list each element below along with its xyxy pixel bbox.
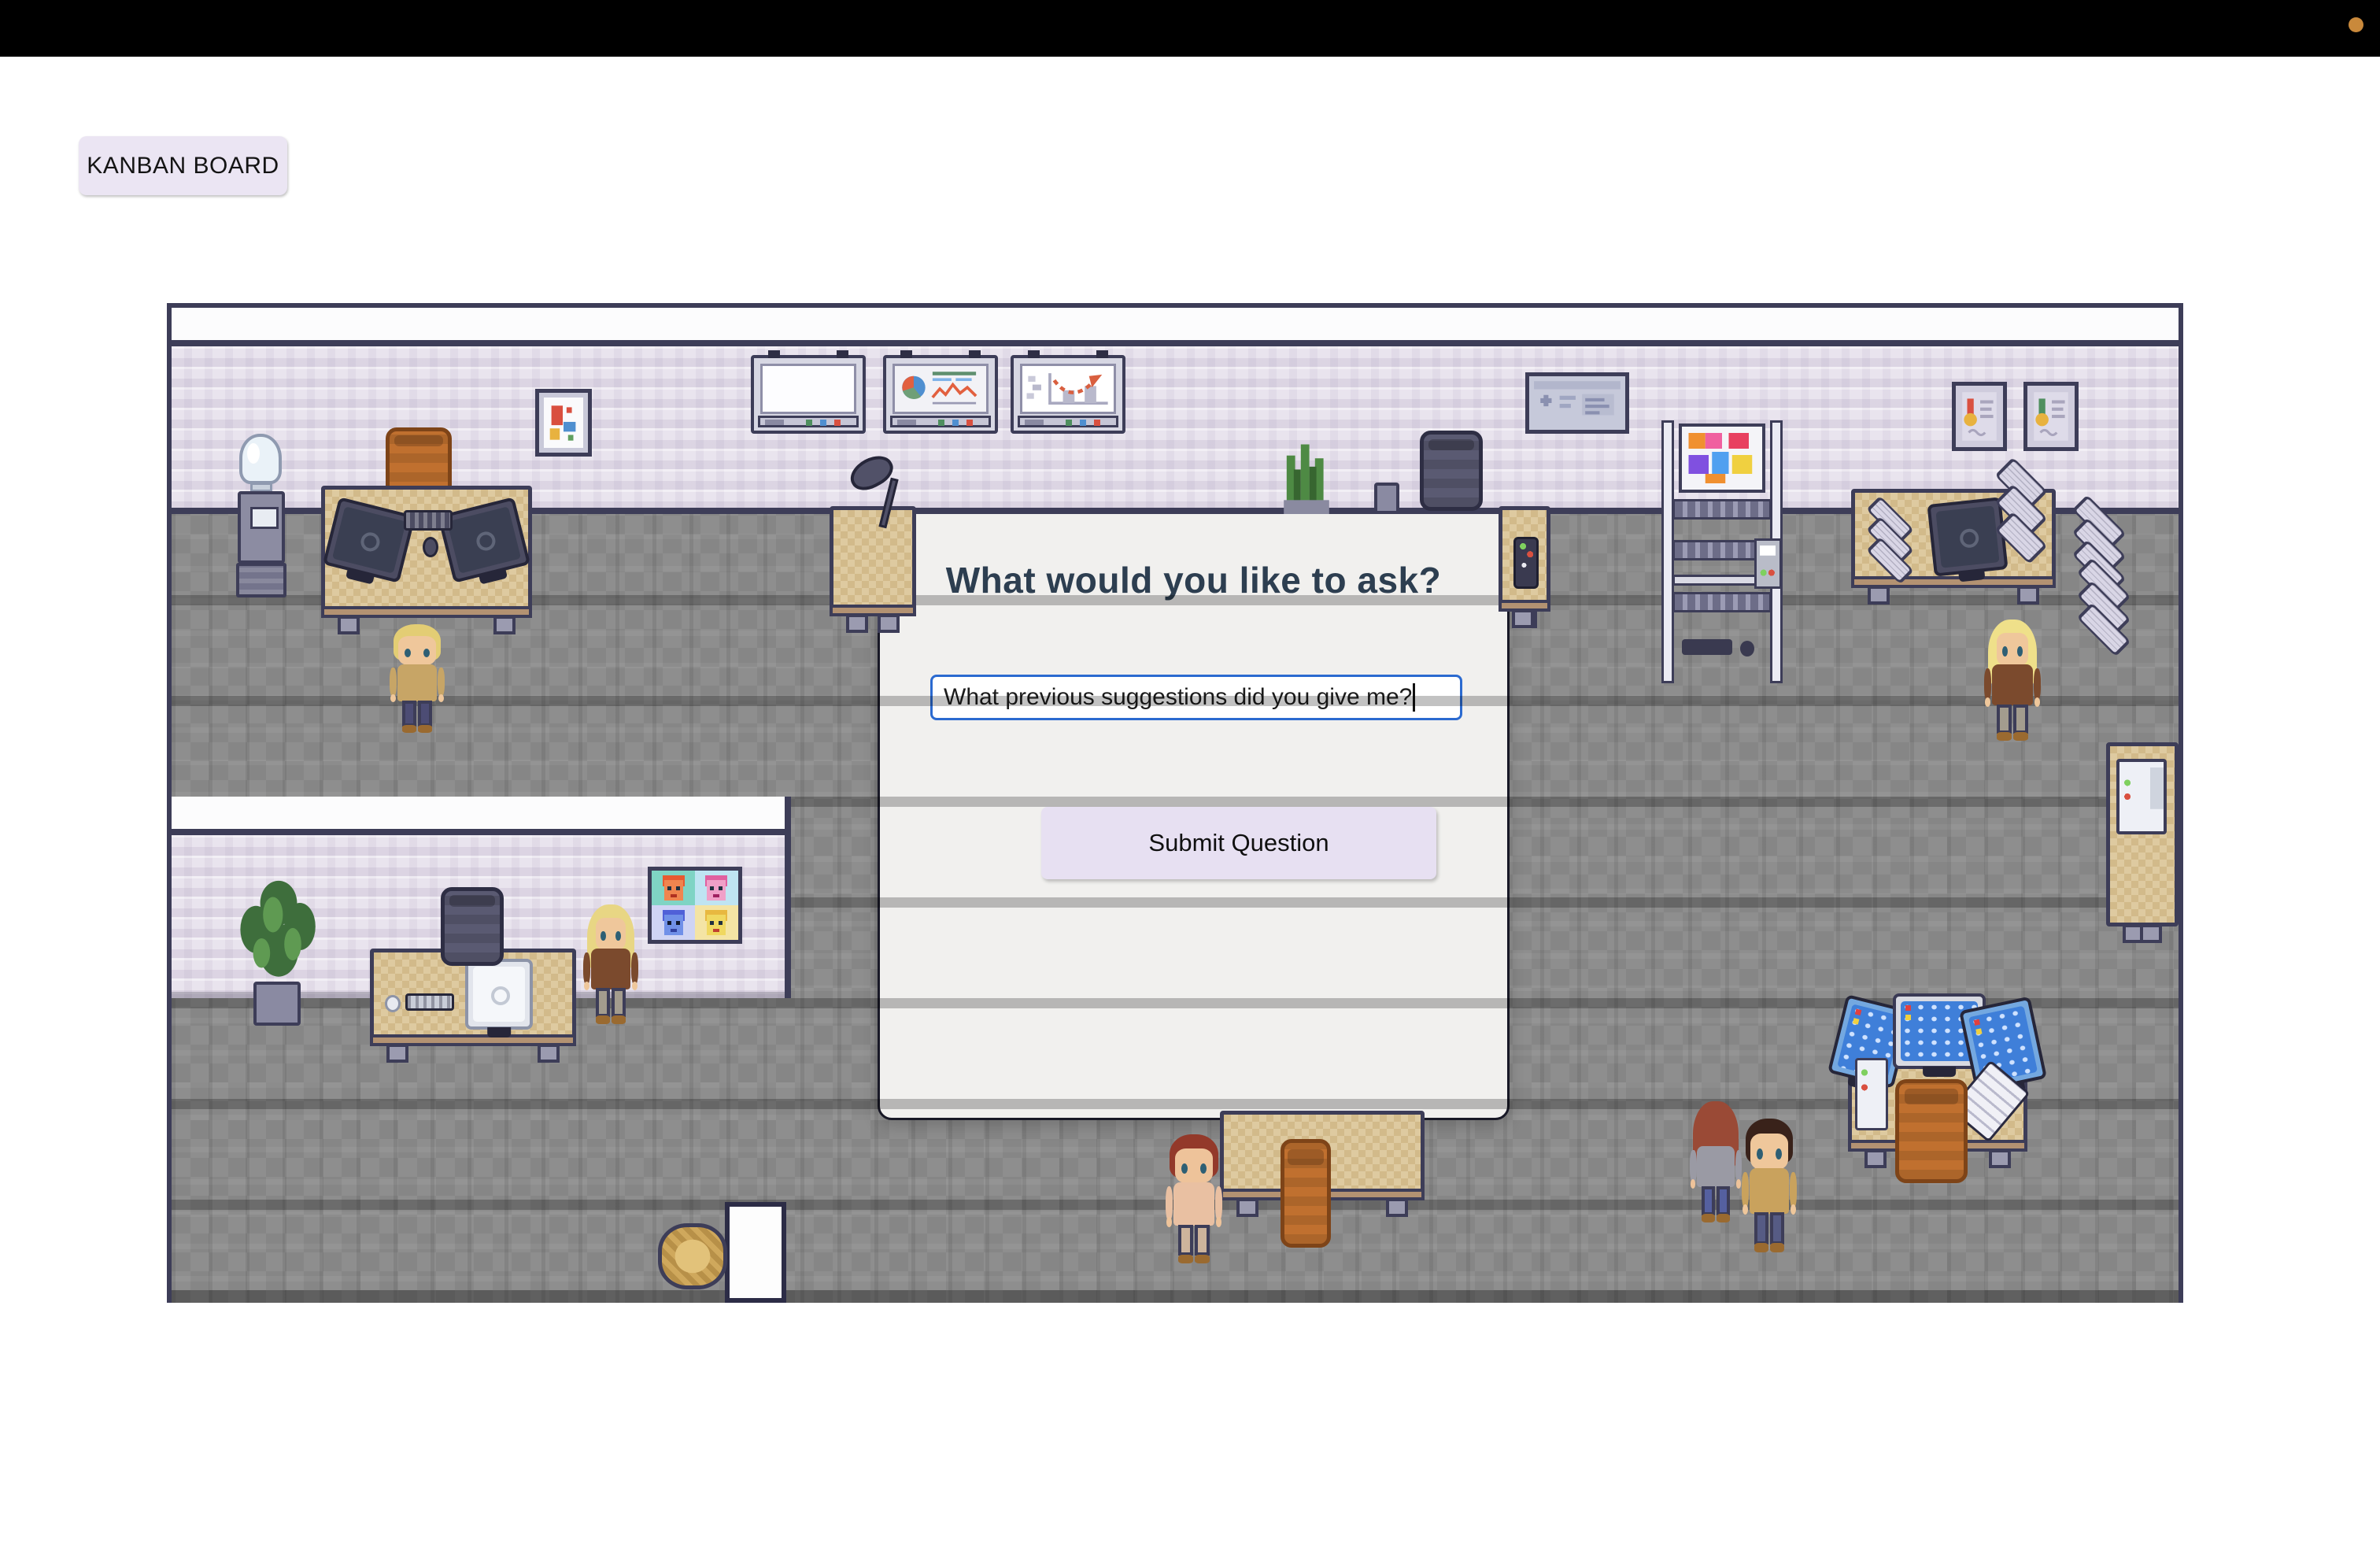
part-part bbox=[1085, 386, 1096, 403]
clip-part bbox=[969, 350, 981, 358]
part-part bbox=[1585, 398, 1604, 401]
certificate-frame bbox=[2023, 382, 2079, 451]
part-part bbox=[1560, 404, 1571, 408]
part-part bbox=[1534, 381, 1621, 389]
leg-part bbox=[1989, 1149, 2011, 1168]
plant-pot bbox=[253, 982, 301, 1026]
leg-part bbox=[1717, 1186, 1730, 1215]
shoe-part bbox=[1702, 1214, 1715, 1222]
eye-part bbox=[1200, 1163, 1207, 1174]
character-brown-haired-man bbox=[1741, 1119, 1798, 1252]
leg-part bbox=[1864, 1149, 1887, 1168]
shoe-part bbox=[1997, 732, 2012, 741]
part-part bbox=[2027, 386, 2075, 447]
arm-part bbox=[583, 952, 590, 985]
part-part bbox=[705, 910, 727, 935]
bitem-part bbox=[1740, 641, 1754, 656]
part-part bbox=[1682, 427, 1762, 490]
scr-part bbox=[332, 506, 406, 573]
part-part bbox=[713, 929, 719, 932]
leg-part bbox=[1386, 1198, 1408, 1217]
eye-part bbox=[2017, 646, 2023, 656]
leg-part bbox=[1754, 1212, 1768, 1245]
top-bar bbox=[0, 0, 2380, 57]
part-part bbox=[676, 886, 680, 890]
desktop-tower bbox=[1855, 1058, 1888, 1130]
tall-plant bbox=[236, 879, 321, 997]
part-part bbox=[667, 886, 671, 890]
scr-part bbox=[473, 967, 525, 1022]
leg-part bbox=[402, 701, 416, 727]
leg-part bbox=[1997, 705, 2012, 734]
part-part bbox=[895, 366, 986, 412]
face-part bbox=[1175, 1148, 1214, 1183]
g-part bbox=[1066, 420, 1072, 426]
shoe-part bbox=[402, 725, 416, 733]
part-part bbox=[719, 921, 722, 925]
desk bbox=[830, 506, 916, 616]
wc-body-part bbox=[238, 491, 285, 564]
part-part bbox=[1964, 413, 1977, 426]
leg-part bbox=[878, 614, 900, 633]
office-chair bbox=[1895, 1079, 1968, 1183]
remote-control bbox=[1513, 537, 1539, 589]
part-part bbox=[2052, 408, 2063, 411]
floor-divider bbox=[172, 1290, 2179, 1303]
tray-part bbox=[1018, 416, 1118, 427]
part-part bbox=[1310, 467, 1317, 503]
shoe-part bbox=[1178, 1255, 1193, 1263]
shoe-part bbox=[1717, 1214, 1730, 1222]
part-part bbox=[1689, 455, 1709, 474]
shoe-part bbox=[418, 725, 432, 733]
ceiling-band bbox=[172, 308, 2179, 346]
leg-part bbox=[418, 701, 432, 727]
monitor bbox=[323, 497, 416, 583]
trim-part bbox=[830, 605, 916, 616]
clip-part bbox=[900, 350, 912, 358]
character-red-haired-man bbox=[1165, 1134, 1223, 1263]
torso-part bbox=[1750, 1168, 1789, 1214]
surface-part bbox=[760, 364, 856, 414]
surface-part bbox=[1020, 364, 1116, 414]
arm-part bbox=[1166, 1186, 1173, 1221]
desk-lamp bbox=[849, 458, 915, 540]
shoe-part bbox=[596, 1015, 610, 1024]
part-part bbox=[955, 378, 971, 381]
keyboard bbox=[404, 510, 453, 531]
pop-art-poster bbox=[648, 867, 742, 944]
paper-stack bbox=[1861, 504, 1921, 583]
part-part bbox=[1301, 445, 1310, 503]
desk bbox=[1851, 489, 2056, 588]
part-part bbox=[933, 372, 976, 375]
part-part bbox=[652, 871, 738, 940]
part-part bbox=[710, 886, 714, 890]
part-part bbox=[1560, 396, 1576, 400]
part-part bbox=[1033, 385, 1041, 390]
bl-part bbox=[820, 420, 826, 426]
inner-part bbox=[544, 398, 583, 448]
clip-part bbox=[768, 350, 780, 358]
part-part bbox=[671, 894, 677, 897]
slat-part bbox=[1672, 592, 1772, 612]
leg-part bbox=[493, 616, 516, 634]
pd-papers-part bbox=[2115, 844, 2173, 919]
wall-art-frame bbox=[535, 389, 592, 457]
part-part bbox=[664, 880, 683, 901]
part-part bbox=[671, 929, 677, 932]
arm-part bbox=[438, 668, 445, 697]
arm-part bbox=[390, 668, 397, 697]
kanban-board-button[interactable]: KANBAN BOARD bbox=[79, 136, 287, 195]
part-part bbox=[1706, 433, 1722, 449]
eye-part bbox=[615, 931, 621, 941]
part-part bbox=[1712, 452, 1728, 474]
leg-part bbox=[338, 616, 360, 634]
office-chair bbox=[1420, 431, 1483, 511]
face-part bbox=[596, 918, 626, 950]
arm-part bbox=[2034, 668, 2042, 701]
slat-part bbox=[1672, 499, 1772, 520]
shelf-unit bbox=[1661, 420, 1783, 683]
part-part bbox=[567, 407, 572, 412]
part-part bbox=[707, 880, 726, 901]
arm-part bbox=[631, 952, 638, 985]
part-part bbox=[719, 886, 722, 890]
leg-part bbox=[2013, 705, 2028, 734]
part-part bbox=[676, 921, 680, 925]
part-part bbox=[1732, 455, 1753, 474]
part-part bbox=[1980, 415, 1994, 418]
part-part bbox=[2052, 400, 2065, 403]
torso-part bbox=[591, 949, 630, 989]
monitor bbox=[465, 959, 533, 1030]
keyboard bbox=[405, 993, 454, 1011]
part-part bbox=[1956, 386, 2003, 447]
certificate-frame bbox=[1952, 382, 2007, 451]
part-part bbox=[263, 897, 283, 933]
whiteboard-graph bbox=[1011, 355, 1125, 434]
part-part bbox=[1980, 400, 1994, 403]
whiteboard-charts bbox=[883, 355, 998, 434]
mouse bbox=[385, 995, 401, 1012]
character-long-haired-back bbox=[1689, 1101, 1743, 1222]
bl-part bbox=[1080, 420, 1086, 426]
r2c-part bbox=[172, 797, 785, 835]
part-part bbox=[1706, 474, 1726, 483]
leg-part bbox=[612, 988, 626, 1016]
g-part bbox=[806, 420, 812, 426]
page: { "topbar": { "background": "#000000", "… bbox=[0, 0, 2380, 1546]
eye-part bbox=[405, 649, 411, 657]
eye-part bbox=[1181, 1163, 1188, 1174]
paper-stack bbox=[1992, 463, 2053, 567]
tray-part bbox=[890, 416, 991, 427]
arm-part bbox=[1690, 1150, 1697, 1183]
part-part bbox=[2035, 413, 2049, 426]
part-part bbox=[1027, 393, 1034, 398]
part-part bbox=[552, 405, 563, 425]
shoe-part bbox=[1195, 1255, 1210, 1263]
part-part bbox=[933, 378, 952, 381]
part-part bbox=[664, 915, 683, 935]
torso-part bbox=[1992, 664, 2033, 705]
leg-part bbox=[1868, 586, 1890, 605]
part-part bbox=[1278, 442, 1335, 514]
desk bbox=[1499, 506, 1550, 612]
character-blond-man bbox=[389, 624, 445, 733]
pd-device-part bbox=[2116, 759, 2167, 834]
stand-part bbox=[487, 1027, 511, 1037]
part-part bbox=[1022, 366, 1114, 412]
part-part bbox=[236, 879, 321, 997]
er-part bbox=[765, 420, 784, 425]
part-part bbox=[1980, 408, 1991, 411]
stand-part bbox=[346, 568, 375, 585]
office-chair bbox=[1281, 1139, 1331, 1248]
monitor bbox=[438, 497, 530, 583]
part-part bbox=[1529, 376, 1625, 430]
arm-part bbox=[1790, 1172, 1797, 1208]
torso-part bbox=[1173, 1182, 1214, 1226]
art-part bbox=[1679, 423, 1765, 493]
part-part bbox=[1284, 500, 1329, 514]
part-part bbox=[1689, 433, 1706, 449]
r-part bbox=[834, 420, 841, 426]
r-part bbox=[1094, 420, 1100, 426]
part-part bbox=[544, 398, 583, 448]
wicker-chair bbox=[658, 1223, 727, 1289]
leg-part bbox=[1178, 1225, 1193, 1256]
office-chair bbox=[441, 887, 504, 966]
part-part bbox=[1585, 405, 1609, 408]
leg-part bbox=[538, 1044, 560, 1063]
torso-part bbox=[397, 664, 437, 701]
trash-bin bbox=[1374, 483, 1399, 514]
shoe-part bbox=[612, 1015, 626, 1024]
game-map bbox=[167, 303, 2183, 1303]
stand-part bbox=[1923, 1067, 1956, 1077]
eye-part bbox=[423, 649, 430, 657]
printer-desk bbox=[2106, 742, 2179, 926]
character-blonde-woman bbox=[1983, 620, 2042, 741]
part-part bbox=[707, 915, 726, 935]
face-part bbox=[398, 636, 436, 665]
shoe-part bbox=[1754, 1243, 1768, 1252]
bl-part bbox=[952, 420, 959, 426]
whiteboard bbox=[751, 355, 866, 434]
part-part bbox=[253, 938, 271, 968]
wc-slot-part bbox=[250, 507, 279, 529]
bitem-part bbox=[1682, 639, 1732, 655]
part-part bbox=[564, 422, 575, 431]
part-part bbox=[550, 428, 560, 439]
torso-part bbox=[1697, 1146, 1735, 1187]
paper-stack bbox=[2071, 568, 2140, 654]
eye-part bbox=[601, 931, 606, 941]
er-part bbox=[897, 420, 916, 425]
tray-part bbox=[758, 416, 859, 427]
part-part bbox=[705, 875, 727, 901]
arm-part bbox=[879, 478, 899, 529]
part-part bbox=[713, 894, 719, 897]
wc-base-part bbox=[236, 563, 286, 597]
face-part bbox=[1997, 633, 2028, 666]
floor-divider bbox=[172, 696, 2179, 706]
eye-part bbox=[2002, 646, 2008, 656]
part-part bbox=[710, 921, 714, 925]
wc-bottle-part bbox=[239, 434, 282, 484]
door bbox=[725, 1202, 786, 1303]
r-part bbox=[966, 420, 973, 426]
part-part bbox=[1287, 445, 1324, 503]
scr-part bbox=[447, 506, 521, 573]
clip-part bbox=[1028, 350, 1040, 358]
face-part bbox=[1750, 1134, 1788, 1170]
water-cooler bbox=[236, 434, 286, 599]
part-part bbox=[1585, 411, 1599, 414]
part-part bbox=[663, 875, 685, 901]
leg-part bbox=[1770, 1212, 1784, 1245]
surface-part bbox=[893, 364, 989, 414]
clip-part bbox=[837, 350, 848, 358]
character-blonde-woman bbox=[582, 904, 639, 1024]
part-part bbox=[2038, 398, 2045, 415]
bulletin-board bbox=[1525, 372, 1629, 434]
part-part bbox=[1729, 433, 1750, 449]
shoe-part bbox=[1770, 1243, 1784, 1252]
clip-part bbox=[1096, 350, 1108, 358]
stand-part bbox=[479, 568, 508, 585]
eye-part bbox=[1757, 1148, 1763, 1159]
part-part bbox=[568, 435, 574, 440]
r2e-part bbox=[785, 797, 791, 998]
leg-part bbox=[1195, 1225, 1210, 1256]
gadget-part bbox=[1754, 538, 1782, 589]
leg-part bbox=[1236, 1198, 1258, 1217]
leg-part bbox=[596, 988, 610, 1016]
eye-part bbox=[1776, 1148, 1782, 1159]
part-part bbox=[2052, 415, 2065, 418]
arm-part bbox=[1984, 668, 1992, 701]
er-part bbox=[1025, 420, 1044, 425]
desk bbox=[321, 486, 532, 618]
part-part bbox=[663, 910, 685, 935]
status-dot-icon bbox=[2349, 17, 2363, 32]
arm-part bbox=[1742, 1172, 1749, 1208]
part-part bbox=[667, 921, 671, 925]
part-part bbox=[1967, 398, 1973, 415]
part-part bbox=[1028, 376, 1035, 382]
mouse bbox=[423, 537, 438, 557]
g-part bbox=[938, 420, 944, 426]
part-part bbox=[284, 928, 301, 960]
leg-part bbox=[2140, 924, 2162, 943]
leg-part bbox=[846, 614, 868, 633]
arm-part bbox=[1215, 1186, 1223, 1221]
scr-part bbox=[1935, 505, 1999, 568]
leg-part bbox=[1702, 1186, 1715, 1215]
part-part bbox=[1294, 469, 1301, 502]
leg-part bbox=[1512, 609, 1534, 628]
leg-part bbox=[386, 1044, 408, 1063]
submit-question-button[interactable]: Submit Question bbox=[1041, 807, 1436, 879]
potted-plant bbox=[1278, 442, 1335, 514]
leg-part bbox=[2017, 586, 2039, 605]
shoe-part bbox=[2013, 732, 2028, 741]
